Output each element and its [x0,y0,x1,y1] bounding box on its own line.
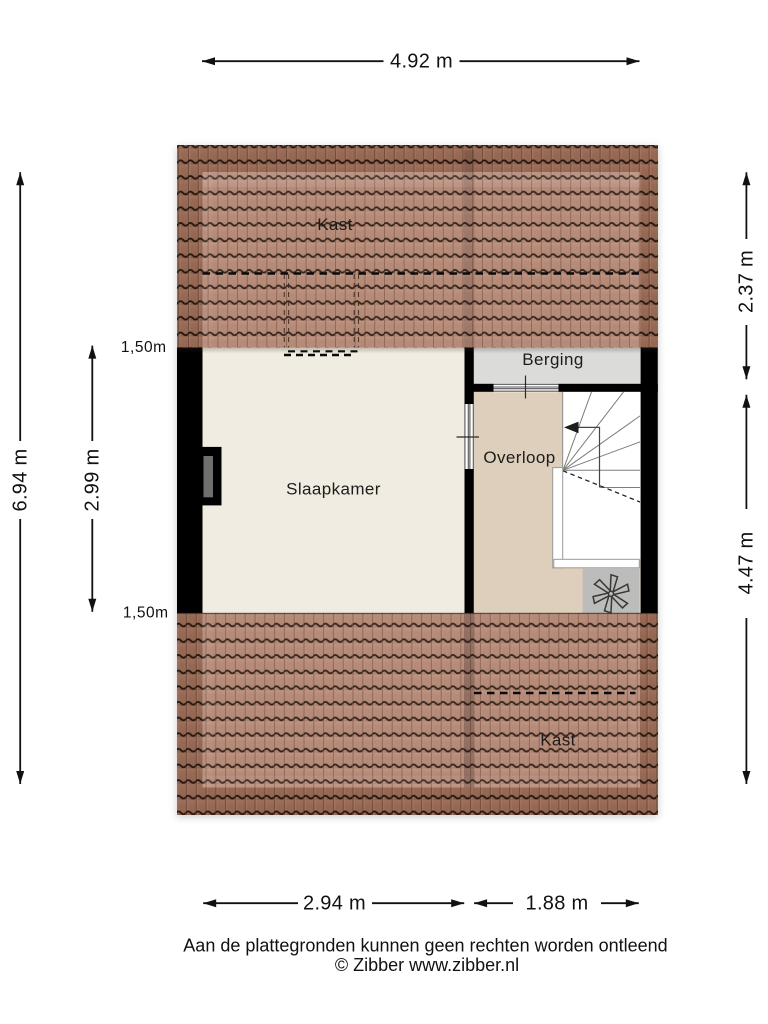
svg-text:4.92 m: 4.92 m [390,51,453,73]
svg-text:Overloop: Overloop [483,448,555,467]
svg-text:1,50m: 1,50m [123,605,169,622]
svg-text:2.37 m: 2.37 m [736,250,758,313]
svg-text:1.88 m: 1.88 m [526,893,589,915]
svg-text:6.94 m: 6.94 m [10,449,32,512]
svg-text:2.99 m: 2.99 m [82,449,104,512]
svg-text:4.47 m: 4.47 m [736,532,758,595]
svg-text:© Zibber www.zibber.nl: © Zibber www.zibber.nl [335,955,519,975]
svg-text:Aan de plattegronden kunnen ge: Aan de plattegronden kunnen geen rechten… [183,936,667,956]
svg-text:Kast: Kast [317,215,353,234]
svg-text:Kast: Kast [540,731,576,750]
svg-text:2.94 m: 2.94 m [303,893,366,915]
svg-text:1,50m: 1,50m [121,339,167,356]
svg-text:Slaapkamer: Slaapkamer [286,480,381,499]
